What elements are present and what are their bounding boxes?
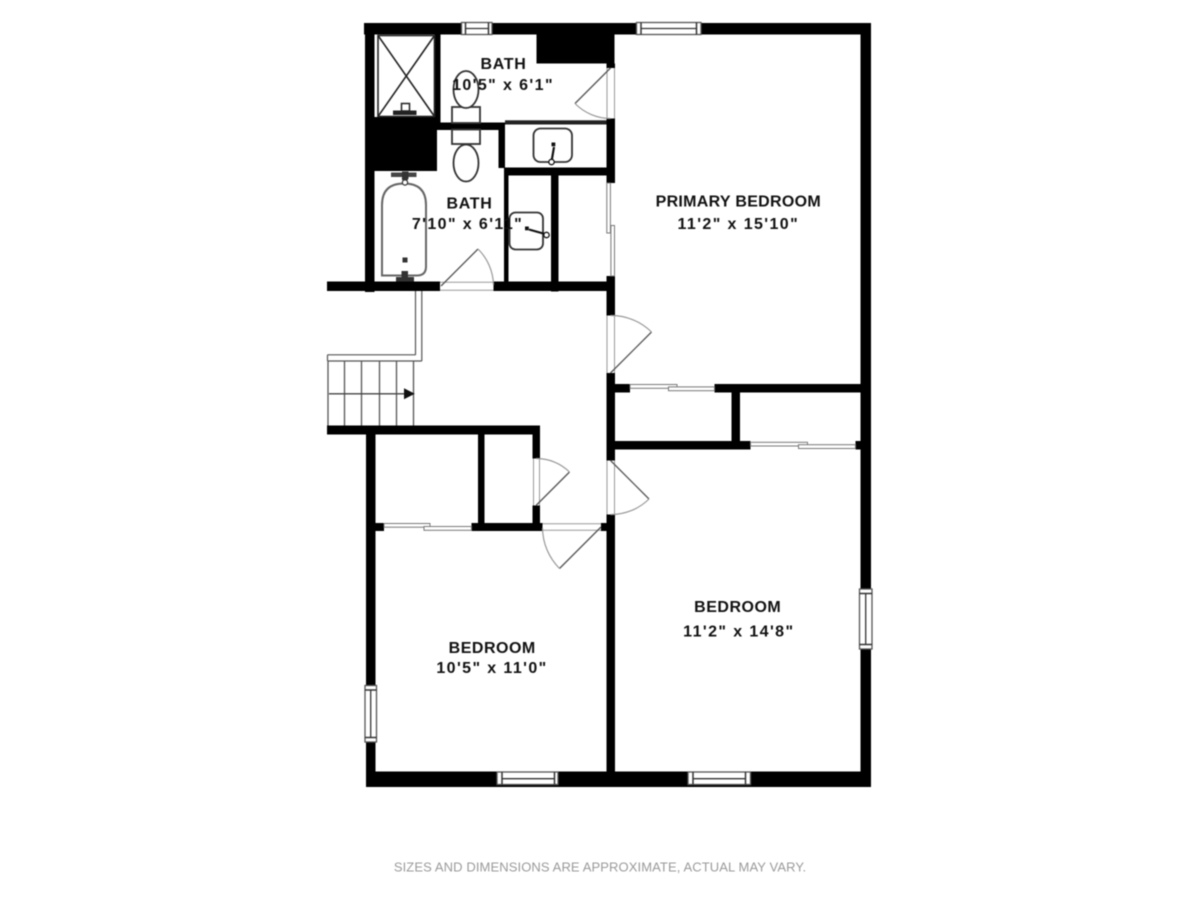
- svg-text:BATH: BATH: [446, 196, 492, 213]
- svg-text:10'5" x 6'1": 10'5" x 6'1": [452, 77, 554, 94]
- svg-text:BEDROOM: BEDROOM: [694, 599, 781, 616]
- svg-text:10'5" x 11'0": 10'5" x 11'0": [436, 660, 547, 677]
- svg-text:PRIMARY BEDROOM: PRIMARY BEDROOM: [656, 194, 821, 211]
- svg-text:BATH: BATH: [480, 56, 526, 73]
- svg-text:BEDROOM: BEDROOM: [449, 640, 536, 657]
- svg-text:7'10" x 6'11": 7'10" x 6'11": [412, 216, 523, 233]
- svg-text:SIZES AND DIMENSIONS ARE APPRO: SIZES AND DIMENSIONS ARE APPROXIMATE, AC…: [394, 860, 806, 875]
- svg-text:11'2" x 14'8": 11'2" x 14'8": [683, 624, 794, 641]
- svg-text:11'2" x 15'10": 11'2" x 15'10": [678, 216, 800, 233]
